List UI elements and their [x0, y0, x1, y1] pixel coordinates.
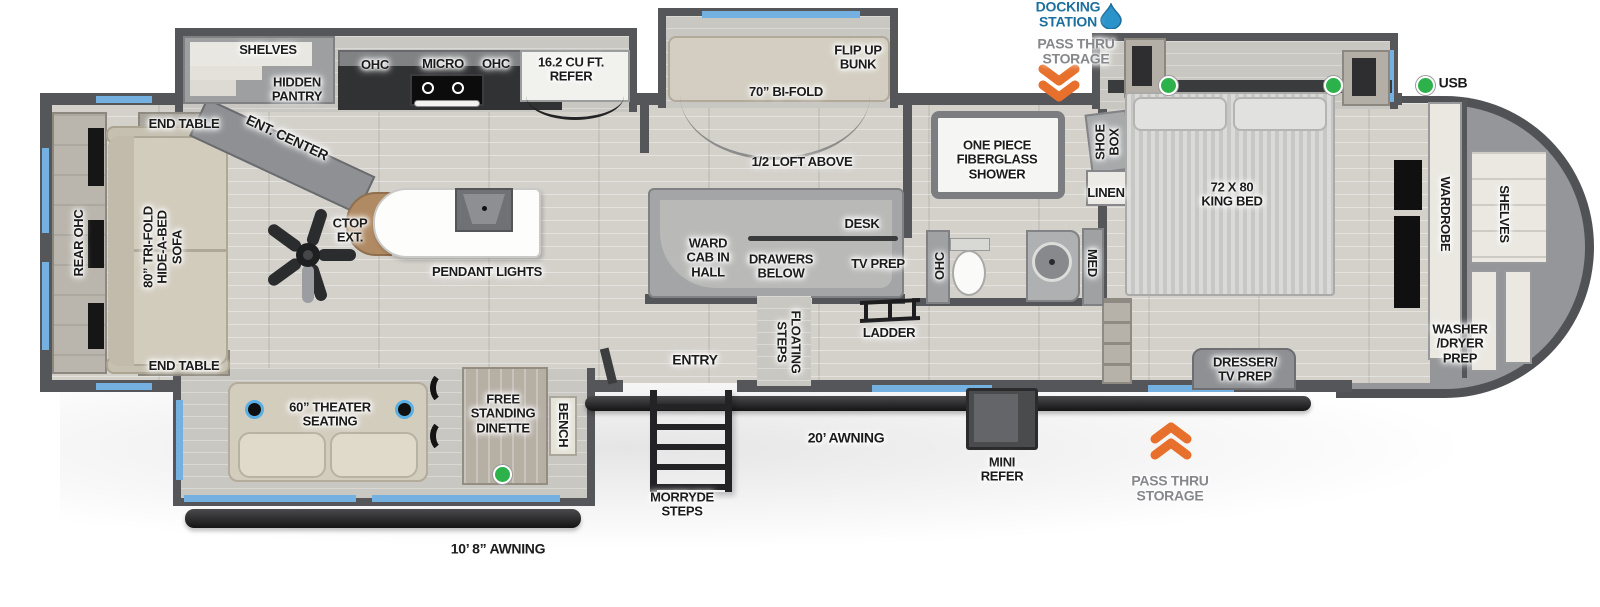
- mini-refer-label: MINI REFER: [981, 456, 1024, 485]
- slide-window-2: [372, 495, 560, 502]
- rear-window-slot-2: [88, 220, 104, 268]
- nightstand-right-usb-dot: [1324, 76, 1343, 95]
- king-bed-label: 72 X 80 KING BED: [1201, 181, 1262, 210]
- sofa-label: 80” TRI-FOLD HIDE-A-BED SOFA: [142, 206, 185, 288]
- pass-thru-down-chevron-icon: [1038, 64, 1080, 102]
- entry-label: ENTRY: [672, 352, 717, 367]
- usb-legend-dot: [1416, 76, 1435, 95]
- pendant-lights-label: PENDANT LIGHTS: [432, 265, 542, 279]
- ladder-label: LADDER: [863, 326, 915, 340]
- linen-label: LINEN: [1087, 186, 1125, 200]
- rear-window-bottom: [96, 383, 152, 390]
- bath-left-wall: [903, 93, 912, 238]
- ladder-icon: [858, 298, 922, 324]
- ward-cab-label: WARD CAB IN HALL: [687, 237, 730, 280]
- dinette-chair-1: [430, 372, 456, 404]
- theater-cushion-right: [330, 432, 418, 478]
- awning-10-8: [185, 509, 581, 528]
- dinette-chair-2: [430, 420, 456, 452]
- rv-floorplan: DOCKING STATION PASS THRU STORAGE USB SH…: [0, 0, 1600, 607]
- pillow-left: [1133, 97, 1227, 131]
- nightstand-left-usb-dot: [1159, 76, 1178, 95]
- pillow-right: [1233, 97, 1327, 131]
- toilet-bowl: [952, 250, 986, 296]
- bifold-label: 70” BI-FOLD: [749, 85, 823, 99]
- island-faucet: [482, 206, 487, 211]
- end-table-bottom-label: END TABLE: [149, 359, 220, 373]
- med-label: MED: [1085, 249, 1099, 277]
- rear-ohc-label: REAR OHC: [72, 210, 86, 277]
- morryde-steps: [650, 390, 732, 492]
- rear-window-slot-1: [88, 128, 104, 186]
- wardrobe-dark-slot-2: [1394, 216, 1420, 308]
- nightstand-left-slot: [1132, 46, 1152, 86]
- flip-up-bunk-label: FLIP UP BUNK: [834, 44, 882, 73]
- cup-holder-left: [245, 400, 264, 419]
- end-table-top-label: END TABLE: [149, 117, 220, 131]
- bedroom-steps: [1102, 298, 1132, 384]
- pass-thru-top-label: PASS THRU STORAGE: [1037, 37, 1114, 68]
- pantry-shelf-2: [190, 66, 262, 80]
- pass-thru-bottom-label: PASS THRU STORAGE: [1131, 474, 1208, 505]
- ctop-ext-label: CTOP EXT.: [333, 217, 368, 246]
- shelves-label: SHELVES: [239, 43, 297, 57]
- rear-window-top: [96, 96, 152, 103]
- pass-thru-up-chevron-icon: [1150, 422, 1192, 460]
- tv-prep-label: TV PREP: [851, 257, 905, 271]
- ohc-left-label: OHC: [361, 58, 389, 72]
- ohc-right-label: OHC: [482, 57, 510, 71]
- pantry-shelf-3: [190, 80, 236, 96]
- theater-cushion-left: [238, 432, 326, 478]
- washer-dryer-label: WASHER /DRYER PREP: [1432, 323, 1487, 366]
- kitchen-loft-wall: [640, 93, 649, 153]
- bath-ohc-label: OHC: [933, 252, 947, 280]
- rear-window-side-2: [42, 262, 49, 350]
- nightstand-right-slot: [1352, 58, 1376, 96]
- docking-station-label: DOCKING STATION: [1036, 0, 1101, 30]
- wardrobe-label: WARDROBE: [1438, 177, 1452, 252]
- dinette-label: FREE STANDING DINETTE: [471, 393, 536, 436]
- shower-label: ONE PIECE FIBERGLASS SHOWER: [957, 139, 1038, 182]
- desk-edge: [748, 236, 898, 241]
- dinette-usb-dot: [493, 465, 512, 484]
- rear-window-side-1: [42, 148, 49, 233]
- floating-steps-label: FLOATING STEPS: [774, 310, 803, 373]
- dresser-tv-label: DRESSER/ TV PREP: [1213, 356, 1277, 385]
- theater-seating-label: 60” THEATER SEATING: [289, 401, 371, 430]
- morryde-steps-label: MORRYDE STEPS: [650, 491, 714, 520]
- slide-window-1: [184, 495, 356, 502]
- water-drop-icon: [1100, 3, 1122, 29]
- drawers-below-label: DRAWERS BELOW: [749, 253, 813, 282]
- bunk-window: [702, 11, 860, 18]
- shoe-box-label: SHOE BOX: [1094, 124, 1123, 160]
- washer-dryer-cabinet-2: [1504, 270, 1532, 364]
- awning-10-8-label: 10’ 8” AWNING: [451, 541, 545, 556]
- rear-window-slot-3: [88, 303, 104, 349]
- sofa-backrest: [108, 136, 134, 366]
- refer-label: 16.2 CU FT. REFER: [538, 56, 604, 85]
- awning-20-label: 20’ AWNING: [808, 430, 885, 445]
- stove-burner-1: [422, 82, 434, 94]
- stove-burner-2: [452, 82, 464, 94]
- wardrobe-dark-slot-1: [1394, 160, 1422, 210]
- vanity-drain: [1049, 259, 1055, 265]
- half-loft-label: 1/2 LOFT ABOVE: [752, 155, 853, 169]
- hidden-pantry-label: HIDDEN PANTRY: [272, 76, 322, 105]
- slide-window-side: [176, 400, 183, 480]
- usb-legend-label: USB: [1439, 75, 1468, 90]
- cup-holder-right: [395, 400, 414, 419]
- stove-vent: [414, 100, 480, 107]
- front-shelves-label: SHELVES: [1497, 185, 1511, 243]
- desk-label: DESK: [845, 217, 880, 231]
- mini-refer-face: [974, 394, 1018, 442]
- bench-label: BENCH: [556, 403, 570, 448]
- micro-label: MICRO: [422, 57, 464, 71]
